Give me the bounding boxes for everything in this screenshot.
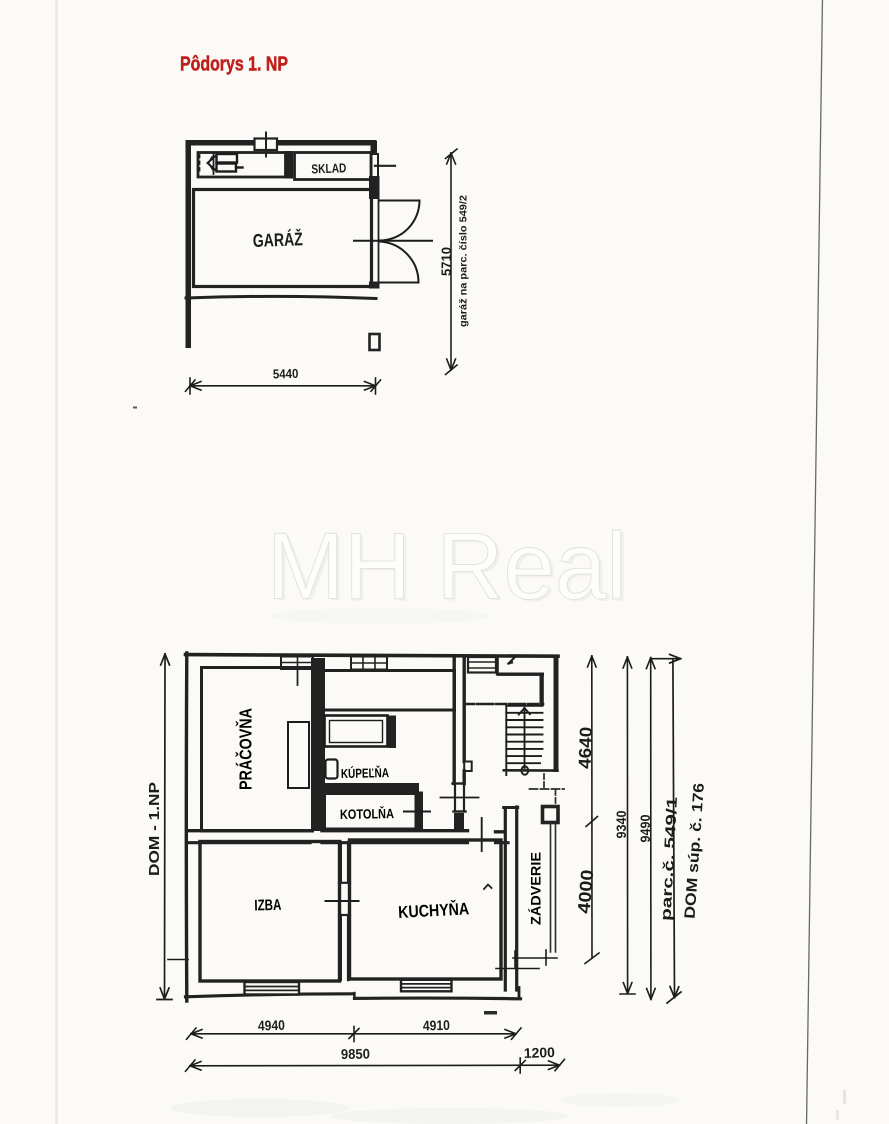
svg-text:KÚPEĽŇA: KÚPEĽŇA	[341, 765, 390, 781]
svg-text:9490: 9490	[638, 815, 653, 843]
svg-text:4000: 4000	[574, 868, 598, 914]
svg-text:GARÁŽ: GARÁŽ	[252, 228, 303, 251]
svg-text:MH Real: MH Real	[267, 514, 627, 620]
svg-text:5710: 5710	[438, 247, 454, 276]
svg-text:9340: 9340	[614, 811, 629, 839]
svg-text:garáž na parc. číslo 549/2: garáž na parc. číslo 549/2	[459, 195, 470, 327]
svg-text:Pôdorys 1. NP: Pôdorys 1. NP	[180, 54, 288, 76]
svg-text:9850: 9850	[341, 1045, 370, 1062]
svg-text:SKLAD: SKLAD	[311, 160, 347, 176]
svg-text:4940: 4940	[258, 1017, 286, 1034]
svg-text:DOM - 1.NP: DOM - 1.NP	[146, 782, 163, 876]
svg-text:4640: 4640	[575, 726, 596, 769]
svg-text:KOTOLŇA: KOTOLŇA	[340, 806, 394, 822]
svg-text:PRÁČOVŇA: PRÁČOVŇA	[235, 708, 256, 790]
svg-text:1200: 1200	[524, 1044, 556, 1061]
svg-text:4910: 4910	[423, 1017, 451, 1034]
svg-text:KUCHYŇA: KUCHYŇA	[398, 899, 470, 922]
svg-text:IZBA: IZBA	[254, 897, 281, 915]
svg-text:5440: 5440	[273, 366, 299, 382]
svg-text:ZÁDVERIE: ZÁDVERIE	[529, 852, 544, 925]
